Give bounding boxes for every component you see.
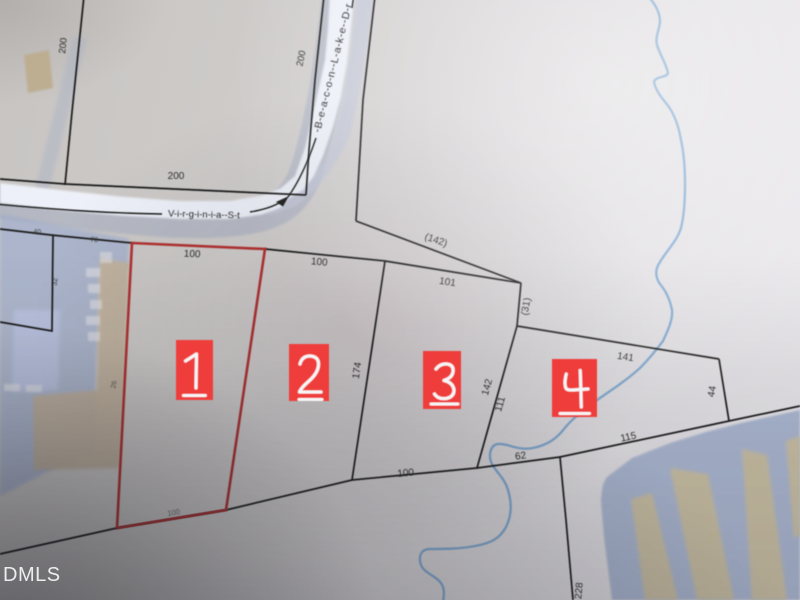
svg-text:DMLS: DMLS [3,564,61,586]
